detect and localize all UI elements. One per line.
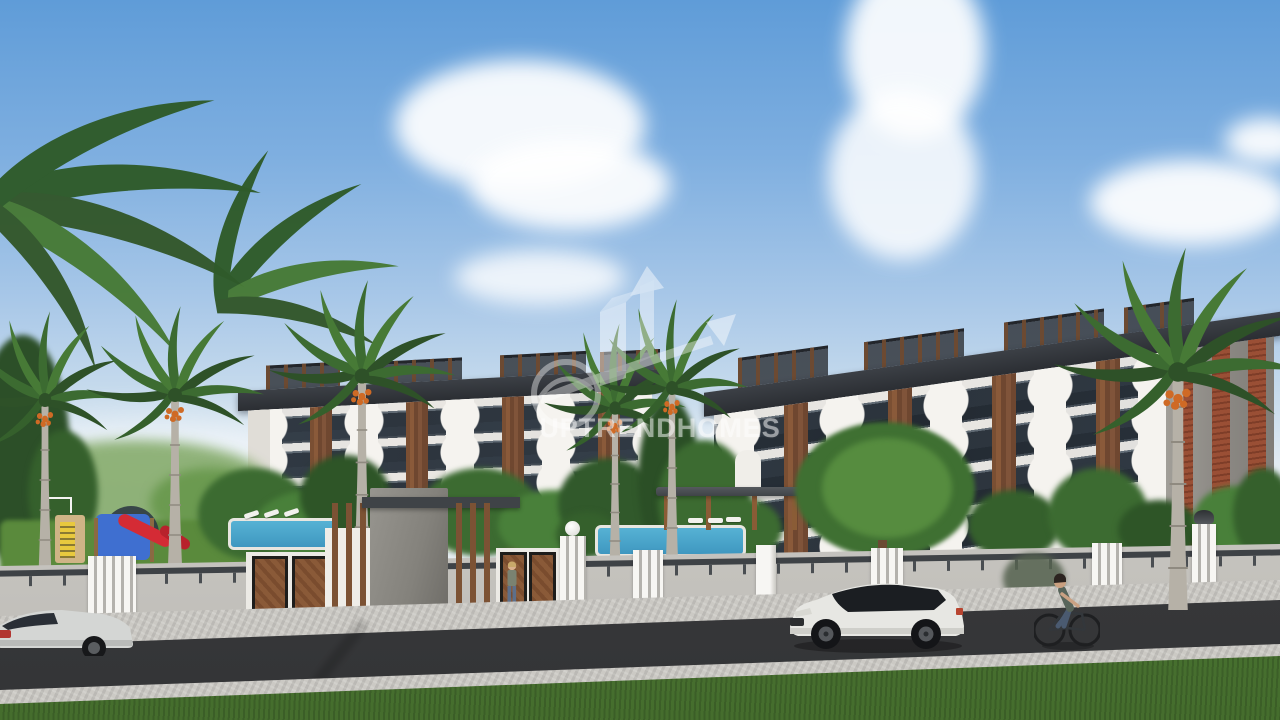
sun-lounger — [688, 518, 703, 523]
pergola-post — [664, 494, 669, 530]
entrance-wood-bars — [332, 503, 366, 613]
watermark-logo-icon — [520, 260, 770, 430]
cloud — [470, 140, 670, 230]
entrance-wood-bars — [456, 503, 498, 613]
sedan-car — [0, 600, 144, 656]
wooden-gate — [252, 556, 288, 614]
watermark-text: UPTRENDHOMES — [510, 413, 810, 444]
swimming-pool-center — [595, 525, 746, 557]
residential-complex-render: UPTRENDHOMES — [0, 0, 1280, 720]
tree — [822, 438, 952, 538]
cloud — [1225, 118, 1280, 164]
playground-ladder — [60, 522, 75, 558]
pergola-post — [752, 494, 757, 530]
globe-lamp — [565, 521, 580, 536]
pool-pergola-roof — [656, 487, 804, 496]
soccer-goal — [42, 497, 72, 513]
sun-lounger — [726, 517, 741, 522]
suv-car — [786, 572, 968, 656]
swimming-pool-left — [228, 518, 338, 550]
sun-lounger — [708, 518, 723, 523]
cloud — [1090, 160, 1280, 245]
cyclist — [1034, 556, 1100, 650]
street-lamp — [1194, 510, 1214, 524]
pergola-post — [706, 494, 711, 530]
wooden-gate — [292, 556, 328, 614]
cloud — [828, 90, 978, 260]
